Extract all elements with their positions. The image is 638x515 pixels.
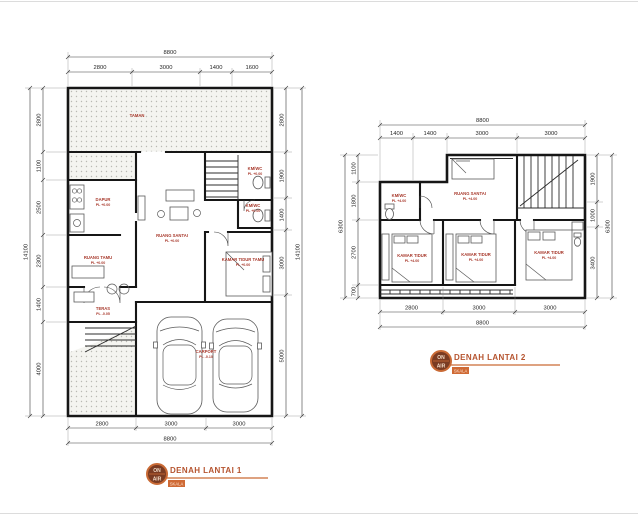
dim-p1-bottom-total: 8800 [164,437,177,443]
garden-hatch-pocket [70,152,137,180]
dim-p1-top-total: 8800 [164,50,177,56]
dim-p2-right-2: 3400 [591,257,597,270]
dim-p2-right-total: 6300 [606,220,612,233]
room-label-ruang-santai: RUANG SANTAI [156,233,188,238]
room-label-dapur: DAPUR [96,197,111,202]
room-level-p2-kamar-3: PL +4.00 [542,256,557,260]
plan1: TAMAN DAPUR PL +0.00 RUANG SANTAI PL +0.… [24,50,307,487]
bathroom2-door-arc [420,196,432,208]
room-label-p2-kamar-1: KAMAR TIDUR [397,253,427,258]
dim-p2-left-3: 700 [352,287,358,297]
bed-icon-3 [526,230,572,280]
dim-p1-left-total: 14100 [24,244,30,260]
garden-hatch-top [70,90,271,152]
plan2-title: DENAH LANTAI 2 [454,353,526,362]
room-level-ruang-santai: PL +0.00 [165,239,180,243]
dim-p1-left-4: 1400 [37,298,43,311]
room-level-p2-kamar-2: PL +4.00 [469,258,484,262]
plan1-title: DENAH LANTAI 1 [170,466,242,475]
onair-logo-top-text: ON [153,468,161,474]
dim-p2-bottom-2: 3000 [544,306,557,312]
living-room-sofa-icon [138,190,201,220]
room-level-ruang-tamu: PL +0.00 [91,261,106,265]
room-level-p2-ruang-santai: PL +4.00 [463,197,478,201]
plan2: RUANG SANTAI PL +4.00 KM/WC PL +4.00 KAM… [339,118,618,374]
room-label-p2-kmwc: KM/WC [392,193,407,198]
room-label-carport: CARPORT [196,349,217,354]
floor-plan-sheet: TAMAN DAPUR PL +0.00 RUANG SANTAI PL +0.… [0,0,638,515]
plan2-stairs [517,156,585,208]
dim-p2-right-0: 1900 [591,173,597,186]
dim-p1-bottom-2: 3000 [233,422,246,428]
car-icon-2 [210,319,262,412]
dim-p2-left-1: 1800 [352,195,358,208]
toilet-icon-3 [385,204,394,220]
dim-p2-bottom-1: 3000 [473,306,486,312]
guest-room-sofa-icon [72,266,129,302]
dim-p1-right-4: 5000 [280,350,286,363]
room-label-p2-kamar-3: KAMAR TIDUR [534,250,564,255]
room-level-carport: PL -0.10 [199,355,213,359]
toilet-icon-1 [253,176,270,189]
dim-p1-top-3: 1600 [246,65,259,71]
plan1-scale-label: SKALA [170,481,184,486]
dim-p1-top-0: 2800 [94,65,107,71]
dim-p2-top-3: 3000 [545,131,558,137]
room-label-kamar-tidur-tamu: KAMAR TIDUR TAMU [222,257,265,262]
bedroom-door-arc [214,232,228,246]
room-level-kmwc-2: PL +0.00 [246,209,261,213]
dim-p1-left-0: 2800 [37,114,43,127]
dim-p2-top-1: 1400 [424,131,437,137]
dim-p1-right-1: 1900 [280,170,286,183]
dim-p1-right-0: 2800 [280,114,286,127]
dim-p2-right-1: 1000 [591,209,597,222]
plan2-scale-label: SKALA [454,368,468,373]
dim-p1-right-total: 14100 [296,244,302,260]
room-level-p2-kmwc: PL +4.00 [392,199,407,203]
bedroom1-door-arc [420,220,434,234]
room-label-kmwc-2: KM/WC [246,203,261,208]
dim-p1-right-2: 1400 [280,209,286,222]
dim-p1-left-3: 2300 [37,255,43,268]
sofa-bed-icon [452,159,494,179]
dim-p1-top-1: 3000 [160,65,173,71]
sink-icon [70,214,84,232]
ensuite-fixtures-icon [572,222,583,246]
room-label-kmwc-1: KM/WC [248,166,263,171]
dim-p2-bottom-total: 8800 [476,321,489,327]
dim-p1-left-5: 4000 [37,363,43,376]
dim-p1-bottom-0: 2800 [96,422,109,428]
dim-p1-left-1: 1100 [37,160,43,172]
dim-p1-left-2: 2500 [37,201,43,214]
dim-p2-left-0: 1100 [352,162,358,174]
onair-logo-top-text-2: ON [437,355,445,361]
stairs-second-floor-icon [517,156,585,208]
stove-icon [70,185,84,209]
dim-p2-top-0: 1400 [390,131,403,137]
dim-p2-top-total: 8800 [476,118,489,124]
dim-p1-right-3: 3000 [280,257,286,270]
dim-p2-top-2: 3000 [476,131,489,137]
bedroom2-door-arc [480,220,494,234]
plan1-dim-right-line [284,86,288,418]
onair-logo-bottom-text: AIR [153,477,162,483]
dim-p2-left-total: 6300 [339,220,345,233]
stairs-up-icon [206,155,238,200]
dim-p2-bottom-0: 2800 [405,306,418,312]
bed-icon-1 [382,234,432,282]
plan1-title-block: ON AIR DENAH LANTAI 1 SKALA [147,464,268,487]
floor-plan-drawing: TAMAN DAPUR PL +0.00 RUANG SANTAI PL +0.… [0,0,638,515]
garden-hatch-bottom [70,328,136,414]
dim-p1-top-2: 1400 [210,65,223,71]
room-label-p2-kamar-2: KAMAR TIDUR [461,252,491,257]
car-icon-1 [154,317,206,414]
room-level-dapur: PL +0.00 [96,203,111,207]
room-label-taman: TAMAN [130,113,145,118]
dim-p1-bottom-1: 3000 [165,422,178,428]
room-label-teras: TERAS [96,306,110,311]
room-level-p2-kamar-1: PL +4.00 [405,259,420,263]
room-level-kamar-tidur-tamu: PL +0.00 [236,263,251,267]
room-label-ruang-tamu: RUANG TAMU [84,255,112,260]
room-label-p2-ruang-santai: RUANG SANTAI [454,191,486,196]
plan2-title-block: ON AIR DENAH LANTAI 2 SKALA [431,351,560,374]
room-level-kmwc-1: PL +0.00 [248,172,263,176]
dim-p2-left-2: 2700 [352,246,358,259]
room-level-teras: PL -0.05 [96,312,110,316]
onair-logo-bottom-text-2: AIR [437,364,446,370]
